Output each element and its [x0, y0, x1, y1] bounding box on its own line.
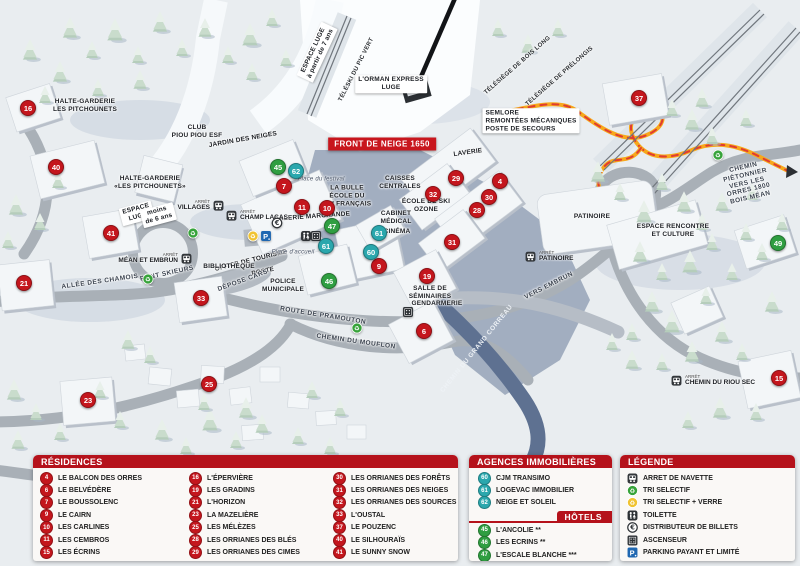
marker-badge-62: 62	[478, 496, 491, 509]
res-item: 23LA MAZELIÈRE	[189, 509, 333, 521]
item-label: PARKING PAYANT ET LIMITÉ	[643, 549, 739, 556]
map-label-salle-de: SALLE DE SÉMINAIRES	[409, 285, 451, 301]
marker-badge-23: 23	[189, 509, 202, 522]
legend-item: ♻TRI SELECTIF	[627, 484, 795, 496]
map-label-police: POLICE MUNICIPALE	[262, 278, 304, 294]
item-label: LES ECRINS **	[496, 539, 545, 546]
svg-text:♻: ♻	[250, 233, 256, 240]
item-label: TOILETTE	[643, 512, 677, 519]
map-marker-37[interactable]: 37	[631, 90, 647, 106]
map-marker-30[interactable]: 30	[481, 189, 497, 205]
marker-badge-7: 7	[40, 496, 53, 509]
elevator-icon	[403, 307, 414, 318]
item-label: L'HORIZON	[207, 499, 245, 506]
recycle-yellow-icon: ♻	[627, 497, 638, 508]
marker-badge-9: 9	[40, 509, 53, 522]
map-marker-11[interactable]: 11	[294, 199, 310, 215]
marker-badge-32: 32	[333, 496, 346, 509]
marker-badge-6: 6	[40, 484, 53, 497]
item-label: LOGEVAC IMMOBILIER	[496, 487, 574, 494]
map-marker-25[interactable]: 25	[201, 376, 217, 392]
res-item: 25LES MÉLÈZES	[189, 522, 333, 534]
bus-stop-patinoire: ARRÊTPATINOIRE	[525, 251, 573, 263]
legend-item: ARRET DE NAVETTE	[627, 472, 795, 484]
residences-panel: RÉSIDENCES 4LE BALCON DES ORRES6LE BELVÉ…	[33, 455, 458, 561]
bus-stop-label: ARRÊTCHEMIN DU RIOU SEC	[685, 375, 755, 387]
map-label-semlore: SEMLORE REMONTÉES MÉCANIQUES POSTE DE SE…	[482, 108, 579, 133]
map-marker-33[interactable]: 33	[193, 290, 209, 306]
map-label-place-du-festival: Place du festival	[297, 176, 344, 183]
map-marker-47[interactable]: 47	[324, 218, 340, 234]
item-label: LES GRADINS	[207, 487, 255, 494]
map-marker-61[interactable]: 61	[371, 225, 387, 241]
map-marker-9[interactable]: 9	[371, 258, 387, 274]
svg-text:♻: ♻	[630, 488, 636, 495]
map-label-patinoire: PATINOIRE	[574, 213, 610, 221]
svg-text:♻: ♻	[145, 276, 151, 283]
front-de-neige-banner: FRONT DE NEIGE 1650	[328, 138, 436, 151]
marker-badge-21: 21	[189, 496, 202, 509]
map-marker-46[interactable]: 46	[321, 273, 337, 289]
agences-title: AGENCES IMMOBILIÈRES	[469, 455, 612, 468]
marker-badge-40: 40	[333, 534, 346, 547]
marker-badge-16: 16	[189, 472, 202, 485]
svg-text:♻: ♻	[354, 325, 360, 332]
item-label: LES CEMBROS	[58, 537, 109, 544]
res-item: 15LES ÉCRINS	[40, 546, 189, 558]
recycle-green-icon: ♻	[627, 485, 638, 496]
marker-badge-61: 61	[478, 484, 491, 497]
svg-text:♻: ♻	[630, 500, 636, 507]
res-item: 33L'OUSTAL	[333, 509, 458, 521]
bus-stop-label: ARRÊTPATINOIRE	[539, 251, 573, 263]
map-marker-41[interactable]: 41	[103, 225, 119, 241]
agences-hotels-panel: AGENCES IMMOBILIÈRES 60CJM TRANSIMO61LOG…	[469, 455, 612, 561]
item-label: LE BOUSSOLENC	[58, 499, 118, 506]
residences-title: RÉSIDENCES	[33, 455, 458, 468]
bus-stop-villages: ARRÊTVILLAGES	[177, 200, 224, 212]
map-marker-45[interactable]: 45	[270, 159, 286, 175]
map-marker-49[interactable]: 49	[770, 235, 786, 251]
marker-badge-29: 29	[189, 546, 202, 559]
item-label: LES ÉCRINS	[58, 549, 100, 556]
marker-badge-25: 25	[189, 521, 202, 534]
marker-badge-60: 60	[478, 472, 491, 485]
legende-title: LÉGENDE	[620, 455, 795, 468]
map-marker-21[interactable]: 21	[16, 275, 32, 291]
parking-icon: P	[627, 547, 638, 558]
map-marker-7[interactable]: 7	[276, 178, 292, 194]
euro-icon: €	[272, 218, 283, 229]
bus-icon	[671, 376, 682, 387]
res-item: 4LE BALCON DES ORRES	[40, 472, 189, 484]
item-label: CJM TRANSIMO	[496, 475, 550, 482]
map-marker-62[interactable]: 62	[288, 163, 304, 179]
item-label: LES ORRIANES DES FORÊTS	[351, 475, 450, 482]
map-marker-23[interactable]: 23	[80, 392, 96, 408]
item-label: LES ORRIANES DES BLÉS	[207, 537, 296, 544]
map-label-gendarmerie: GENDARMERIE	[412, 300, 463, 308]
recycle-green-icon: ♻	[188, 228, 199, 239]
map-marker-16[interactable]: 16	[20, 100, 36, 116]
agency-item: 62NEIGE ET SOLEIL	[478, 497, 612, 509]
svg-text:€: €	[629, 524, 635, 532]
item-label: LES ORRIANES DES CIMES	[207, 549, 300, 556]
res-item: 11LES CEMBROS	[40, 534, 189, 546]
res-item: 28LES ORRIANES DES BLÉS	[189, 534, 333, 546]
res-item: 32LES ORRIANES DES SOURCES	[333, 497, 458, 509]
legend-item: €DISTRIBUTEUR DE BILLETS	[627, 522, 795, 534]
item-label: LES ORRIANES DES SOURCES	[351, 499, 456, 506]
res-item: 10LES CARLINES	[40, 522, 189, 534]
map-label-place-d-accueil: Place d'accueil	[272, 249, 315, 256]
item-label: DISTRIBUTEUR DE BILLETS	[643, 524, 738, 531]
hotel-item: 45L'ANCOLIE **	[478, 524, 612, 536]
marker-badge-37: 37	[333, 521, 346, 534]
recycle-yellow-icon: ♻	[248, 231, 259, 242]
svg-text:♻: ♻	[715, 152, 721, 159]
map-label-cin-ma: CINÉMA	[384, 228, 411, 236]
bus-stop-label: ARRÊTMÉAN ET EMBRUN	[118, 253, 178, 265]
item-label: LE SUNNY SNOW	[351, 549, 410, 556]
item-label: L'ESCALE BLANCHE ***	[496, 552, 577, 559]
map-marker-28[interactable]: 28	[469, 202, 485, 218]
item-label: LES MÉLÈZES	[207, 524, 256, 531]
item-label: LA MAZELIÈRE	[207, 512, 258, 519]
marker-badge-47: 47	[478, 549, 491, 561]
svg-text:P: P	[630, 548, 635, 557]
map-marker-40[interactable]: 40	[48, 159, 64, 175]
map-marker-19[interactable]: 19	[419, 268, 435, 284]
res-item: 37LE POUZENC	[333, 522, 458, 534]
svg-text:P: P	[263, 232, 268, 241]
res-item: 29LES ORRIANES DES CIMES	[189, 546, 333, 558]
item-label: LE BALCON DES ORRES	[58, 475, 142, 482]
bus-stop-label: ARRÊTVILLAGES	[177, 200, 210, 212]
marker-badge-19: 19	[189, 484, 202, 497]
map-marker-15[interactable]: 15	[771, 370, 787, 386]
item-label: NEIGE ET SOLEIL	[496, 499, 556, 506]
bus-icon	[525, 252, 536, 263]
bus-icon	[181, 254, 192, 265]
item-label: TRI SELECTIF + VERRE	[643, 499, 722, 506]
marker-badge-41: 41	[333, 546, 346, 559]
marker-badge-15: 15	[40, 546, 53, 559]
map-marker-60[interactable]: 60	[363, 244, 379, 260]
euro-icon: €	[627, 522, 638, 533]
bus-icon	[226, 211, 237, 222]
parking-icon: P	[261, 231, 272, 242]
marker-badge-45: 45	[478, 524, 491, 537]
recycle-green-icon: ♻	[143, 274, 154, 285]
map-marker-29[interactable]: 29	[448, 170, 464, 186]
map-marker-32[interactable]: 32	[425, 186, 441, 202]
resort-map: ESPACE LUGE à partir de 7 ansTÉLÉSKI DU …	[0, 0, 800, 566]
item-label: LE BELVÉDÈRE	[58, 487, 111, 494]
res-item: 9LE CAIRN	[40, 509, 189, 521]
hotel-item: 47L'ESCALE BLANCHE ***	[478, 549, 612, 561]
agency-item: 61LOGEVAC IMMOBILIER	[478, 484, 612, 496]
toilet-icon	[627, 510, 638, 521]
item-label: L'ÉPERVIÈRE	[207, 475, 253, 482]
hotels-title: HÔTELS	[557, 511, 612, 523]
bus-icon	[213, 201, 224, 212]
res-item: 21L'HORIZON	[189, 497, 333, 509]
map-label-caisses: CAISSES CENTRALES	[379, 175, 421, 191]
map-label-cabinet: CABINET MÉDICAL	[380, 210, 411, 226]
item-label: LES CARLINES	[58, 524, 109, 531]
map-label-halte-garderie: HALTE-GARDERIE LES PITCHOUNETS	[53, 98, 117, 114]
agency-item: 60CJM TRANSIMO	[478, 472, 612, 484]
legend-item: ♻TRI SELECTIF + VERRE	[627, 497, 795, 509]
marker-badge-10: 10	[40, 521, 53, 534]
bus-icon	[627, 473, 638, 484]
map-marker-31[interactable]: 31	[444, 234, 460, 250]
marker-badge-46: 46	[478, 536, 491, 549]
bus-stop-chemin-du-riou-sec: ARRÊTCHEMIN DU RIOU SEC	[671, 375, 755, 387]
item-label: ASCENSEUR	[643, 537, 687, 544]
res-item: 40LE SILHOURAÏS	[333, 534, 458, 546]
marker-badge-31: 31	[333, 484, 346, 497]
res-item: 19LES GRADINS	[189, 484, 333, 496]
marker-badge-11: 11	[40, 534, 53, 547]
map-label-halte-garderie: HALTE-GARDERIE «LES PITCHOUNETS»	[114, 175, 186, 191]
legend-item: ASCENSEUR	[627, 534, 795, 546]
item-label: LE SILHOURAÏS	[351, 537, 405, 544]
res-item: 30LES ORRIANES DES FORÊTS	[333, 472, 458, 484]
svg-text:€: €	[274, 219, 280, 227]
item-label: L'OUSTAL	[351, 512, 385, 519]
map-marker-61[interactable]: 61	[318, 238, 334, 254]
recycle-green-icon: ♻	[352, 323, 363, 334]
marker-badge-4: 4	[40, 472, 53, 485]
legend-item: TOILETTE	[627, 509, 795, 521]
legend-item: PPARKING PAYANT ET LIMITÉ	[627, 546, 795, 558]
map-marker-10[interactable]: 10	[319, 200, 335, 216]
item-label: L'ANCOLIE **	[496, 527, 541, 534]
item-label: LE POUZENC	[351, 524, 396, 531]
item-label: LES ORRIANES DES NEIGES	[351, 487, 448, 494]
map-marker-4[interactable]: 4	[492, 173, 508, 189]
marker-badge-28: 28	[189, 534, 202, 547]
item-label: ARRET DE NAVETTE	[643, 475, 713, 482]
res-item: 6LE BELVÉDÈRE	[40, 484, 189, 496]
map-label-espace-rencontre: ESPACE RENCONTRE ET CULTURE	[637, 223, 709, 239]
res-item: 16L'ÉPERVIÈRE	[189, 472, 333, 484]
marker-badge-33: 33	[333, 509, 346, 522]
svg-text:♻: ♻	[190, 230, 196, 237]
hotels-divider: HÔTELS	[469, 511, 612, 523]
map-label-club: CLUB PIOU PIOU ESF	[172, 124, 223, 140]
map-label-l-orman-express: L'ORMAN EXPRESS LUGE	[355, 75, 427, 93]
res-item: 7LE BOUSSOLENC	[40, 497, 189, 509]
res-item: 41LE SUNNY SNOW	[333, 546, 458, 558]
hotel-item: 46LES ECRINS **	[478, 537, 612, 549]
elevator-icon	[627, 535, 638, 546]
map-label-biblioth-que: BIBLIOTHÈQUE	[203, 263, 255, 271]
map-marker-6[interactable]: 6	[416, 323, 432, 339]
legende-panel: LÉGENDE ARRET DE NAVETTE♻TRI SELECTIF♻TR…	[620, 455, 795, 561]
item-label: LE CAIRN	[58, 512, 91, 519]
marker-badge-30: 30	[333, 472, 346, 485]
bus-stop-m-an-et-embrun: ARRÊTMÉAN ET EMBRUN	[118, 253, 192, 265]
recycle-green-icon: ♻	[713, 150, 724, 161]
item-label: TRI SELECTIF	[643, 487, 690, 494]
res-item: 31LES ORRIANES DES NEIGES	[333, 484, 458, 496]
